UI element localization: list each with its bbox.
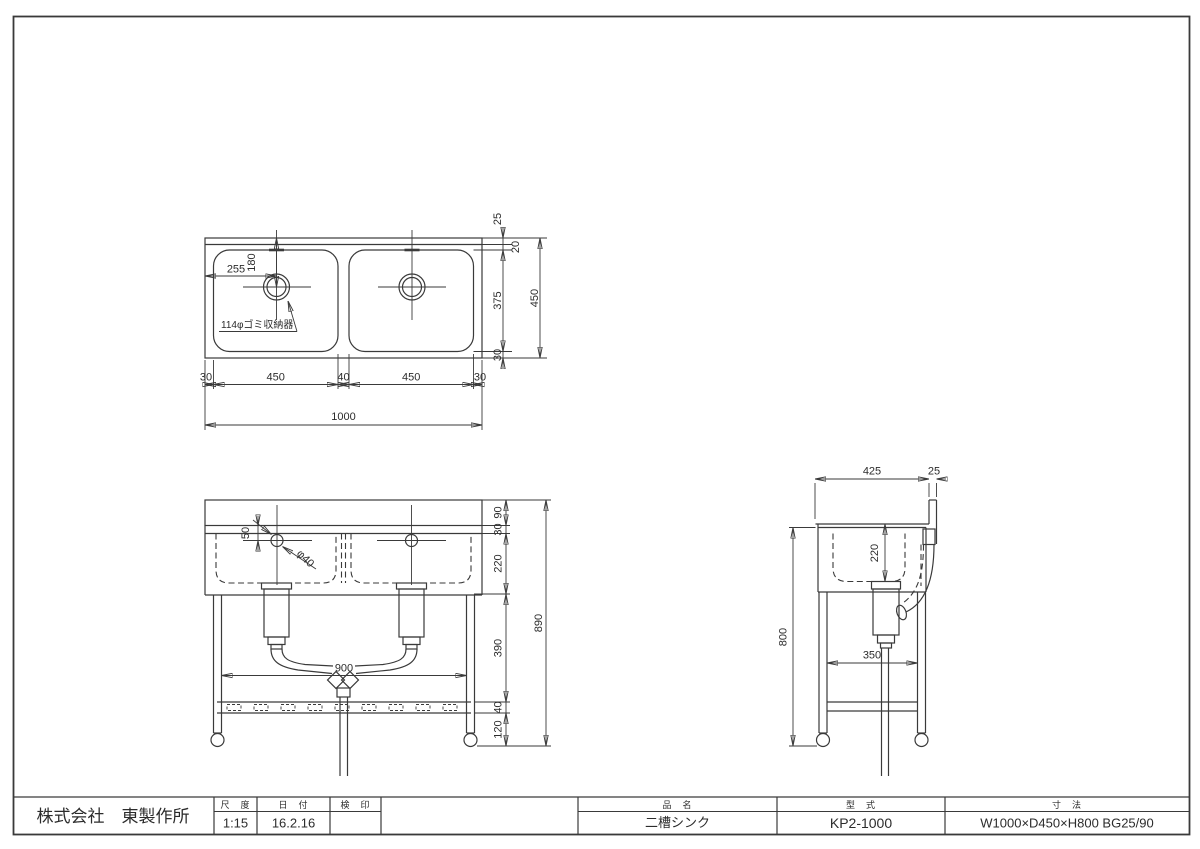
front-dim-overall-h: 890: [533, 614, 545, 632]
side-overflow-fitting: [923, 529, 935, 545]
model-value: KP2-1000: [830, 815, 892, 831]
plan-dim-backsplash: 25: [492, 213, 504, 225]
front-dim-underbowl-h: 390: [493, 639, 505, 657]
front-backsplash: [205, 500, 482, 526]
front-dim-overflow-offset: 50: [240, 527, 252, 539]
front-dim-bowl-h: 220: [493, 554, 505, 572]
side-view: 425 25 220: [778, 466, 947, 777]
drawing-canvas: 255 180 114φゴミ収納器 30 450 40 450 30 1000: [0, 0, 1200, 849]
front-dim-clearance-h: 120: [493, 720, 505, 738]
size-value: W1000×D450×H800 BG25/90: [980, 816, 1153, 831]
product-name-value: 二槽シンク: [645, 815, 710, 830]
front-dim-leg-span: 900: [335, 663, 353, 675]
side-dim-backsplash-t: 25: [928, 466, 940, 478]
plan-dim-drain-y: 180: [246, 253, 258, 271]
foot-side-back: [915, 734, 928, 747]
foot-side-front: [817, 734, 830, 747]
side-dim-height: 800: [778, 628, 790, 646]
scale-value: 1:15: [223, 816, 248, 831]
foot-front-left: [211, 734, 224, 747]
scale-label: 尺 度: [220, 799, 250, 810]
plan-dim-overall-width: 1000: [331, 411, 355, 423]
company-name: 株式会社 東製作所: [37, 807, 190, 826]
front-dim-shelf-h: 40: [493, 701, 505, 713]
foot-front-right: [464, 734, 477, 747]
stamp-label: 検 印: [340, 799, 370, 810]
plan-dim-top-margin: 20: [510, 241, 522, 253]
front-dim-rim-h: 30: [493, 523, 505, 535]
title-block: 株式会社 東製作所 尺 度 日 付 検 印 品 名 型 式 寸 法 1:15 1…: [14, 797, 1190, 835]
plan-dim-center-gap: 40: [337, 372, 349, 384]
drain-note-label: 114φゴミ収納器: [221, 318, 293, 331]
date-label: 日 付: [278, 800, 308, 810]
side-overflow-connector: [895, 604, 909, 621]
plan-dim-bowl-depth: 375: [492, 291, 504, 309]
plan-dim-bottom-margin: 30: [492, 349, 504, 361]
front-trap-right: [399, 589, 424, 637]
product-name-label: 品 名: [662, 799, 692, 810]
plan-view: 255 180 114φゴミ収納器 30 450 40 450 30 1000: [200, 213, 547, 430]
date-value: 16.2.16: [272, 816, 315, 831]
front-dim-backsplash-h: 90: [493, 506, 505, 518]
plan-dim-margin-left: 30: [200, 372, 212, 384]
sheet-border: [14, 17, 1190, 835]
plan-dim-overall-depth: 450: [529, 289, 541, 307]
side-dim-leg-span: 350: [863, 650, 881, 662]
model-label: 型 式: [846, 799, 876, 810]
drawing-sheet: 255 180 114φゴミ収納器 30 450 40 450 30 1000: [0, 0, 1200, 849]
plan-dim-bowl-left-width: 450: [267, 372, 285, 384]
side-dim-counter-depth: 425: [863, 466, 881, 478]
plan-dim-drain-x: 255: [227, 264, 245, 276]
front-trap-left: [264, 589, 289, 637]
plan-dim-bowl-right-width: 450: [402, 372, 420, 384]
side-trap: [873, 589, 899, 635]
plan-bowl-right: [349, 250, 474, 352]
front-view: 50 φ40: [205, 500, 551, 776]
shelf-slats: [227, 705, 457, 711]
plan-dim-margin-right: 30: [474, 372, 486, 384]
size-label: 寸 法: [1052, 799, 1082, 810]
side-dim-bowl-h: 220: [869, 544, 881, 562]
